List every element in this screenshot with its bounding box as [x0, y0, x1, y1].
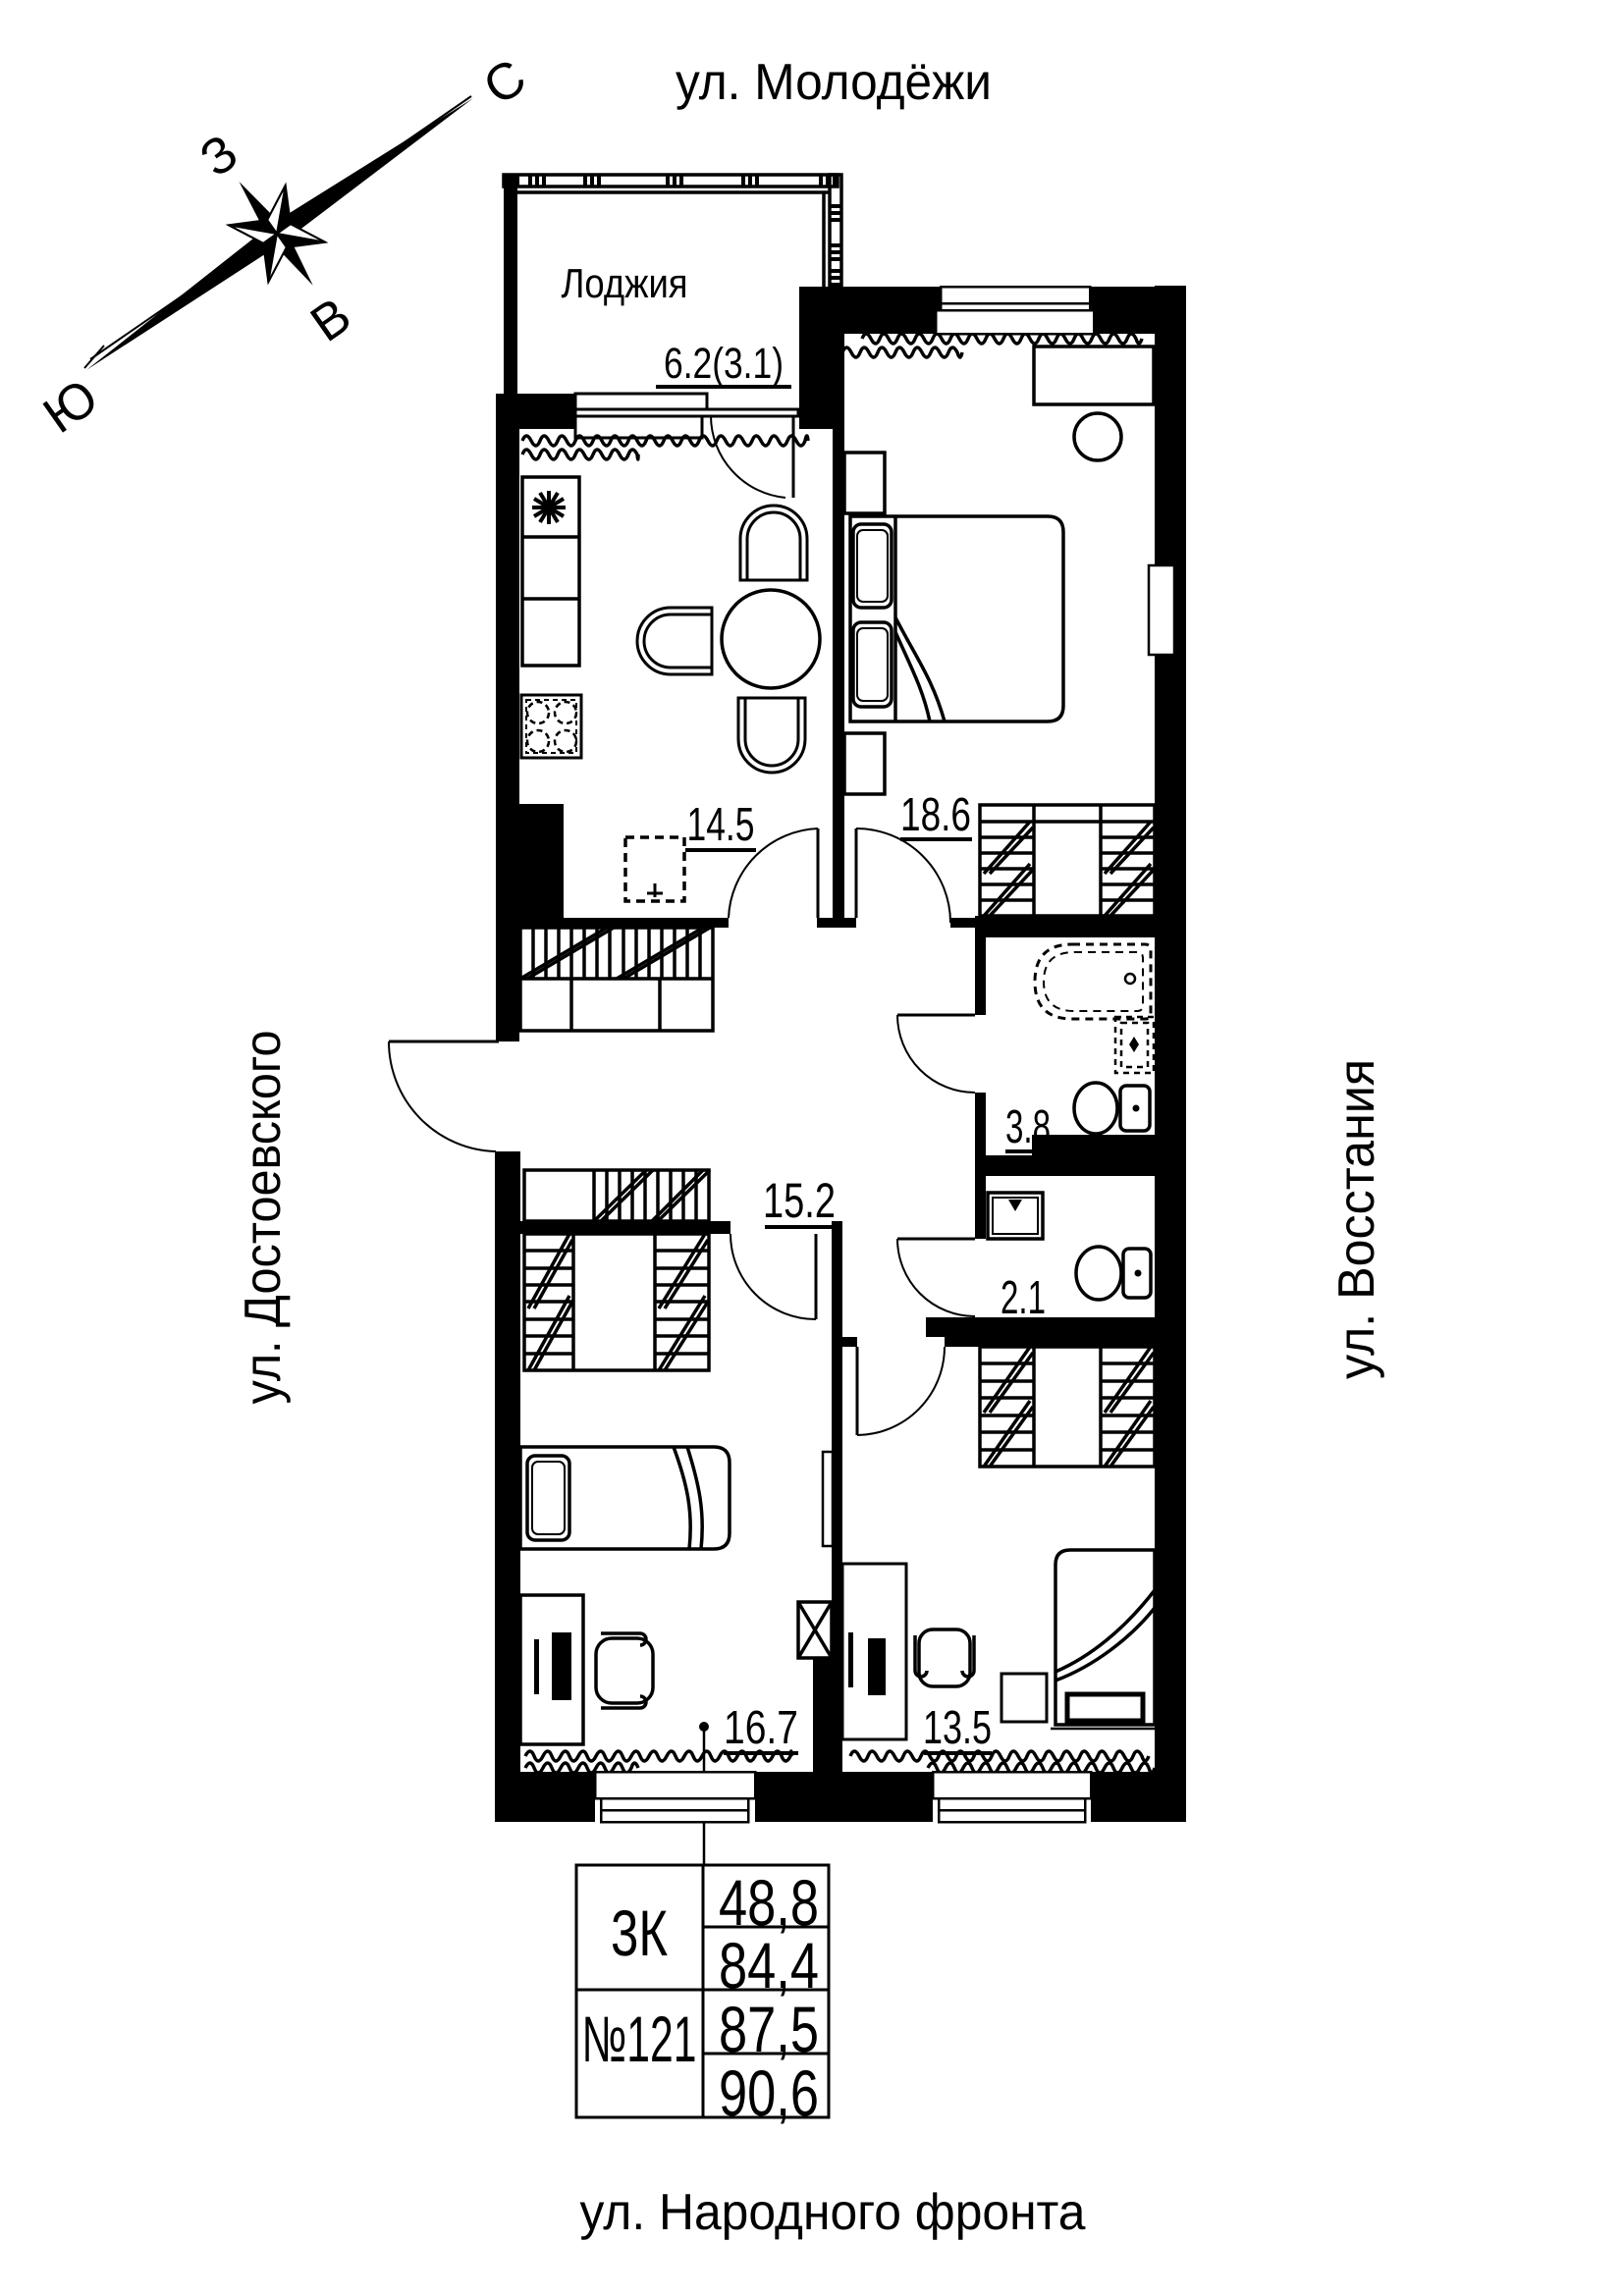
svg-text:6.2(3.1): 6.2(3.1) [664, 340, 784, 388]
svg-text:13.5: 13.5 [923, 1702, 992, 1754]
svg-text:15.2: 15.2 [763, 1173, 836, 1228]
svg-text:84,4: 84,4 [719, 1929, 819, 2002]
svg-text:ул. Восстания: ул. Восстания [1328, 1059, 1385, 1379]
svg-text:№121: №121 [582, 2002, 697, 2075]
svg-text:90,6: 90,6 [719, 2056, 819, 2129]
svg-text:48,8: 48,8 [719, 1866, 819, 1939]
svg-text:2.1: 2.1 [1001, 1272, 1046, 1324]
svg-text:16.7: 16.7 [724, 1702, 798, 1754]
svg-text:87,5: 87,5 [719, 1993, 819, 2065]
svg-text:Лоджия: Лоджия [562, 260, 688, 306]
svg-text:ул. Достоевского: ул. Достоевского [235, 1031, 292, 1405]
svg-text:3К: 3К [611, 1896, 668, 1969]
svg-text:ул. Молодёжи: ул. Молодёжи [676, 54, 992, 111]
svg-text:3.8: 3.8 [1005, 1101, 1051, 1153]
svg-text:18.6: 18.6 [900, 789, 971, 841]
svg-text:ул. Народного фронта: ул. Народного фронта [580, 2184, 1086, 2241]
svg-text:14.5: 14.5 [687, 799, 755, 851]
